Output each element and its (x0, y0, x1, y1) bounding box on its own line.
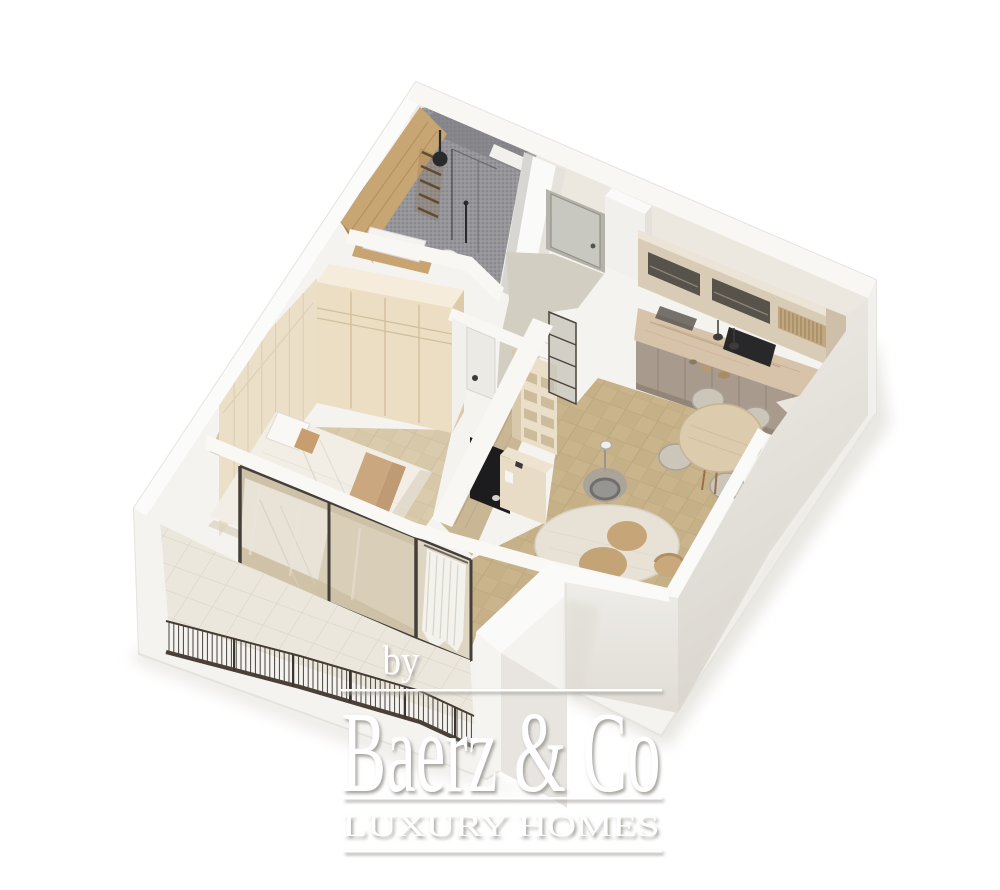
svg-text:LUXURY HOMES: LUXURY HOMES (343, 810, 660, 844)
svg-text:by: by (383, 638, 420, 683)
